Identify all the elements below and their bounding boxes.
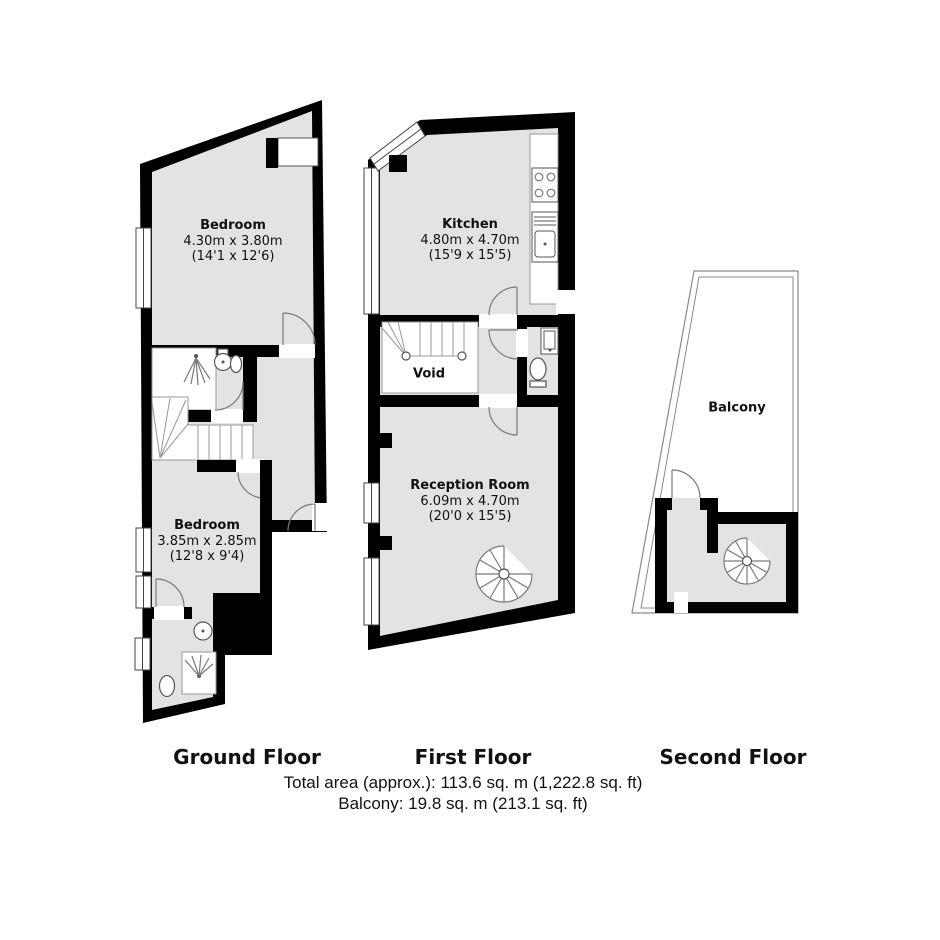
first-floor-plan: [364, 112, 578, 650]
room-dim-imperial: (14'1 x 12'6): [183, 249, 282, 265]
caption-first-floor: First Floor: [415, 745, 532, 769]
room-label-kitchen: Kitchen 4.80m x 4.70m (15'9 x 15'5): [420, 217, 519, 264]
room-name: Balcony: [708, 400, 766, 416]
room-name: Kitchen: [420, 217, 519, 233]
room-dim-imperial: (15'9 x 15'5): [420, 248, 519, 264]
hob-icon: [532, 168, 558, 202]
staircase-icon: [382, 322, 478, 393]
room-dim-metric: 3.85m x 2.85m: [157, 533, 256, 549]
room-label-balcony: Balcony: [708, 400, 766, 416]
balcony-area-text: Balcony: 19.8 sq. m (213.1 sq. ft): [284, 793, 643, 814]
room-dim-metric: 6.09m x 4.70m: [410, 493, 529, 509]
floorplan-page: Bedroom 4.30m x 3.80m (14'1 x 12'6) Bedr…: [0, 0, 940, 940]
room-name: Bedroom: [183, 218, 282, 234]
toilet-icon: [530, 358, 546, 387]
toilet-icon: [160, 676, 175, 697]
room-label-void: Void: [413, 366, 445, 382]
room-name: Void: [413, 366, 445, 382]
total-area-text: Total area (approx.): 113.6 sq. m (1,222…: [284, 772, 643, 793]
room-dim-imperial: (20'0 x 15'5): [410, 509, 529, 525]
room-dim-metric: 4.80m x 4.70m: [420, 232, 519, 248]
shower-icon: [182, 652, 216, 694]
caption-second-floor: Second Floor: [660, 745, 807, 769]
wardrobe-recess: [278, 138, 318, 166]
room-label-bedroom-2: Bedroom 3.85m x 2.85m (12'8 x 9'4): [157, 518, 256, 565]
room-label-reception: Reception Room 6.09m x 4.70m (20'0 x 15'…: [410, 478, 529, 525]
caption-ground-floor: Ground Floor: [173, 745, 321, 769]
second-floor-plan: [632, 271, 798, 613]
sink-icon: [541, 328, 558, 354]
room-name: Bedroom: [157, 518, 256, 534]
room-dim-imperial: (12'8 x 9'4): [157, 549, 256, 565]
room-label-bedroom-1: Bedroom 4.30m x 3.80m (14'1 x 12'6): [183, 218, 282, 265]
room-name: Reception Room: [410, 478, 529, 494]
sink-icon: [194, 622, 212, 640]
ground-floor-plan: [135, 100, 330, 723]
area-summary: Total area (approx.): 113.6 sq. m (1,222…: [284, 772, 643, 814]
toilet-icon: [231, 356, 242, 373]
kitchen-sink-icon: [532, 212, 558, 262]
room-dim-metric: 4.30m x 3.80m: [183, 233, 282, 249]
